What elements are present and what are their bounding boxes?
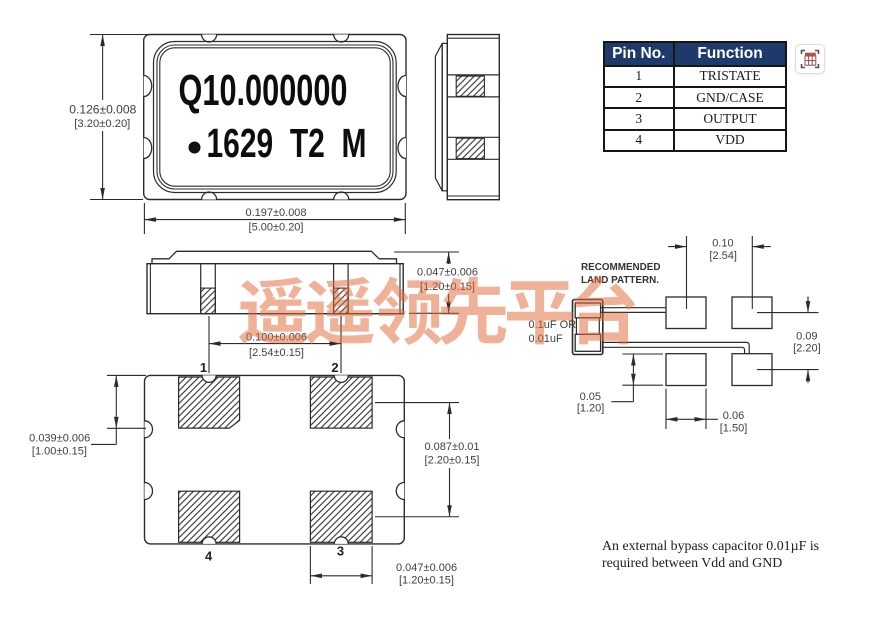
svg-text:0.126±0.008: 0.126±0.008 xyxy=(69,103,136,117)
svg-text:0.039±0.006: 0.039±0.006 xyxy=(29,433,90,445)
svg-text:[1.50]: [1.50] xyxy=(720,422,748,434)
svg-text:[2.54]: [2.54] xyxy=(709,250,737,262)
svg-text:0.01uF: 0.01uF xyxy=(529,333,564,345)
svg-text:0.10: 0.10 xyxy=(712,237,733,249)
svg-text:2: 2 xyxy=(331,360,338,375)
svg-text:0.197±0.008: 0.197±0.008 xyxy=(245,207,306,219)
svg-text:[5.00±0.20]: [5.00±0.20] xyxy=(249,222,304,234)
svg-text:1: 1 xyxy=(200,360,207,375)
svg-text:0.047±0.006: 0.047±0.006 xyxy=(396,562,457,574)
svg-text:0.05: 0.05 xyxy=(580,391,601,403)
svg-text:RECOMMENDED: RECOMMENDED xyxy=(581,261,661,273)
svg-text:0.047±0.006: 0.047±0.006 xyxy=(417,267,478,279)
svg-text:[2.54±0.15]: [2.54±0.15] xyxy=(249,347,304,359)
svg-text:Q10.000000: Q10.000000 xyxy=(179,67,348,115)
svg-text:0.087±0.01: 0.087±0.01 xyxy=(425,441,480,453)
svg-text:[2.20±0.15]: [2.20±0.15] xyxy=(425,454,480,466)
svg-text:[1.20]: [1.20] xyxy=(577,403,605,415)
svg-text:[1.00±0.15]: [1.00±0.15] xyxy=(32,445,87,457)
svg-text:[2.20]: [2.20] xyxy=(793,342,821,354)
svg-text:4: 4 xyxy=(205,549,213,564)
svg-text:3: 3 xyxy=(337,544,344,559)
svg-text:0.06: 0.06 xyxy=(723,410,744,422)
svg-text:[1.20±0.15]: [1.20±0.15] xyxy=(399,574,454,586)
svg-text:[3.20±0.20]: [3.20±0.20] xyxy=(74,118,130,130)
svg-text:1629 T2 M: 1629 T2 M xyxy=(207,120,367,166)
svg-text:0.09: 0.09 xyxy=(796,330,817,342)
